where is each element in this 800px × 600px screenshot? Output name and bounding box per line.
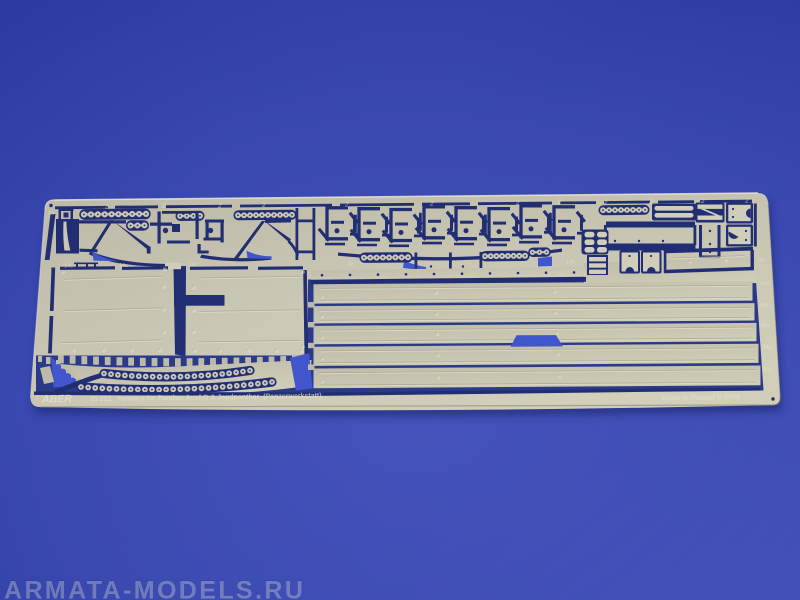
- svg-text:2: 2: [261, 202, 266, 209]
- svg-text:2: 2: [603, 199, 608, 206]
- svg-text:4a: 4a: [347, 262, 354, 268]
- svg-text:34d: 34d: [762, 345, 772, 351]
- svg-text:ARMATA-MODELS.RU: ARMATA-MODELS.RU: [4, 577, 305, 600]
- svg-text:2: 2: [429, 201, 434, 208]
- svg-text:2: 2: [217, 203, 222, 210]
- svg-text:2: 2: [700, 198, 705, 205]
- svg-text:2: 2: [515, 200, 520, 207]
- svg-text:14b: 14b: [566, 260, 575, 266]
- svg-text:2: 2: [344, 201, 349, 208]
- svg-text:14c: 14c: [119, 263, 128, 269]
- svg-text:2: 2: [161, 203, 166, 210]
- svg-text:34b: 34b: [760, 303, 771, 309]
- svg-text:34c: 34c: [761, 323, 771, 329]
- svg-text:34: 34: [758, 258, 765, 264]
- svg-text:14c: 14c: [189, 262, 198, 268]
- svg-text:2: 2: [648, 198, 653, 205]
- svg-text:ABER: ABER: [41, 393, 72, 405]
- svg-text:34a: 34a: [759, 281, 770, 287]
- svg-text:2a: 2a: [48, 211, 55, 217]
- svg-text:14c: 14c: [64, 264, 73, 270]
- svg-text:2: 2: [104, 204, 109, 211]
- svg-text:2: 2: [557, 199, 562, 206]
- svg-text:34e: 34e: [763, 367, 774, 373]
- svg-text:2: 2: [744, 197, 749, 204]
- svg-text:Made in Poland © 2008: Made in Poland © 2008: [662, 392, 740, 402]
